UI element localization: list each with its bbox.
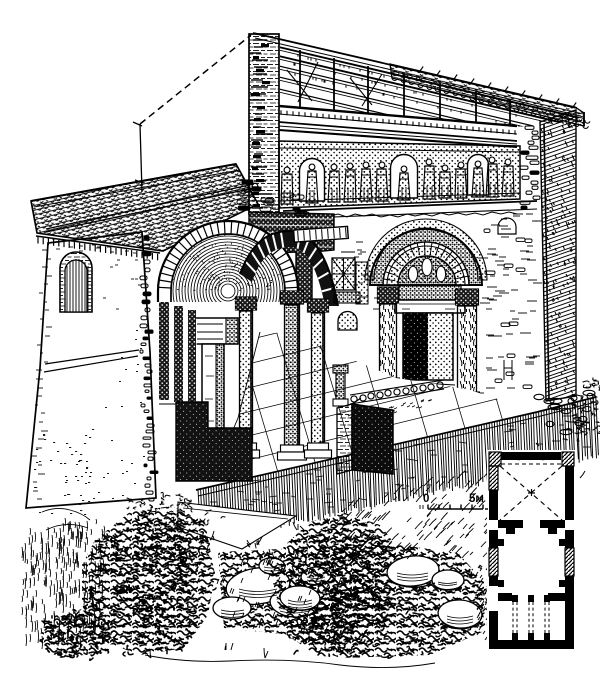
svg-text:0: 0 — [423, 493, 429, 505]
svg-text:5м: 5м — [469, 493, 484, 505]
